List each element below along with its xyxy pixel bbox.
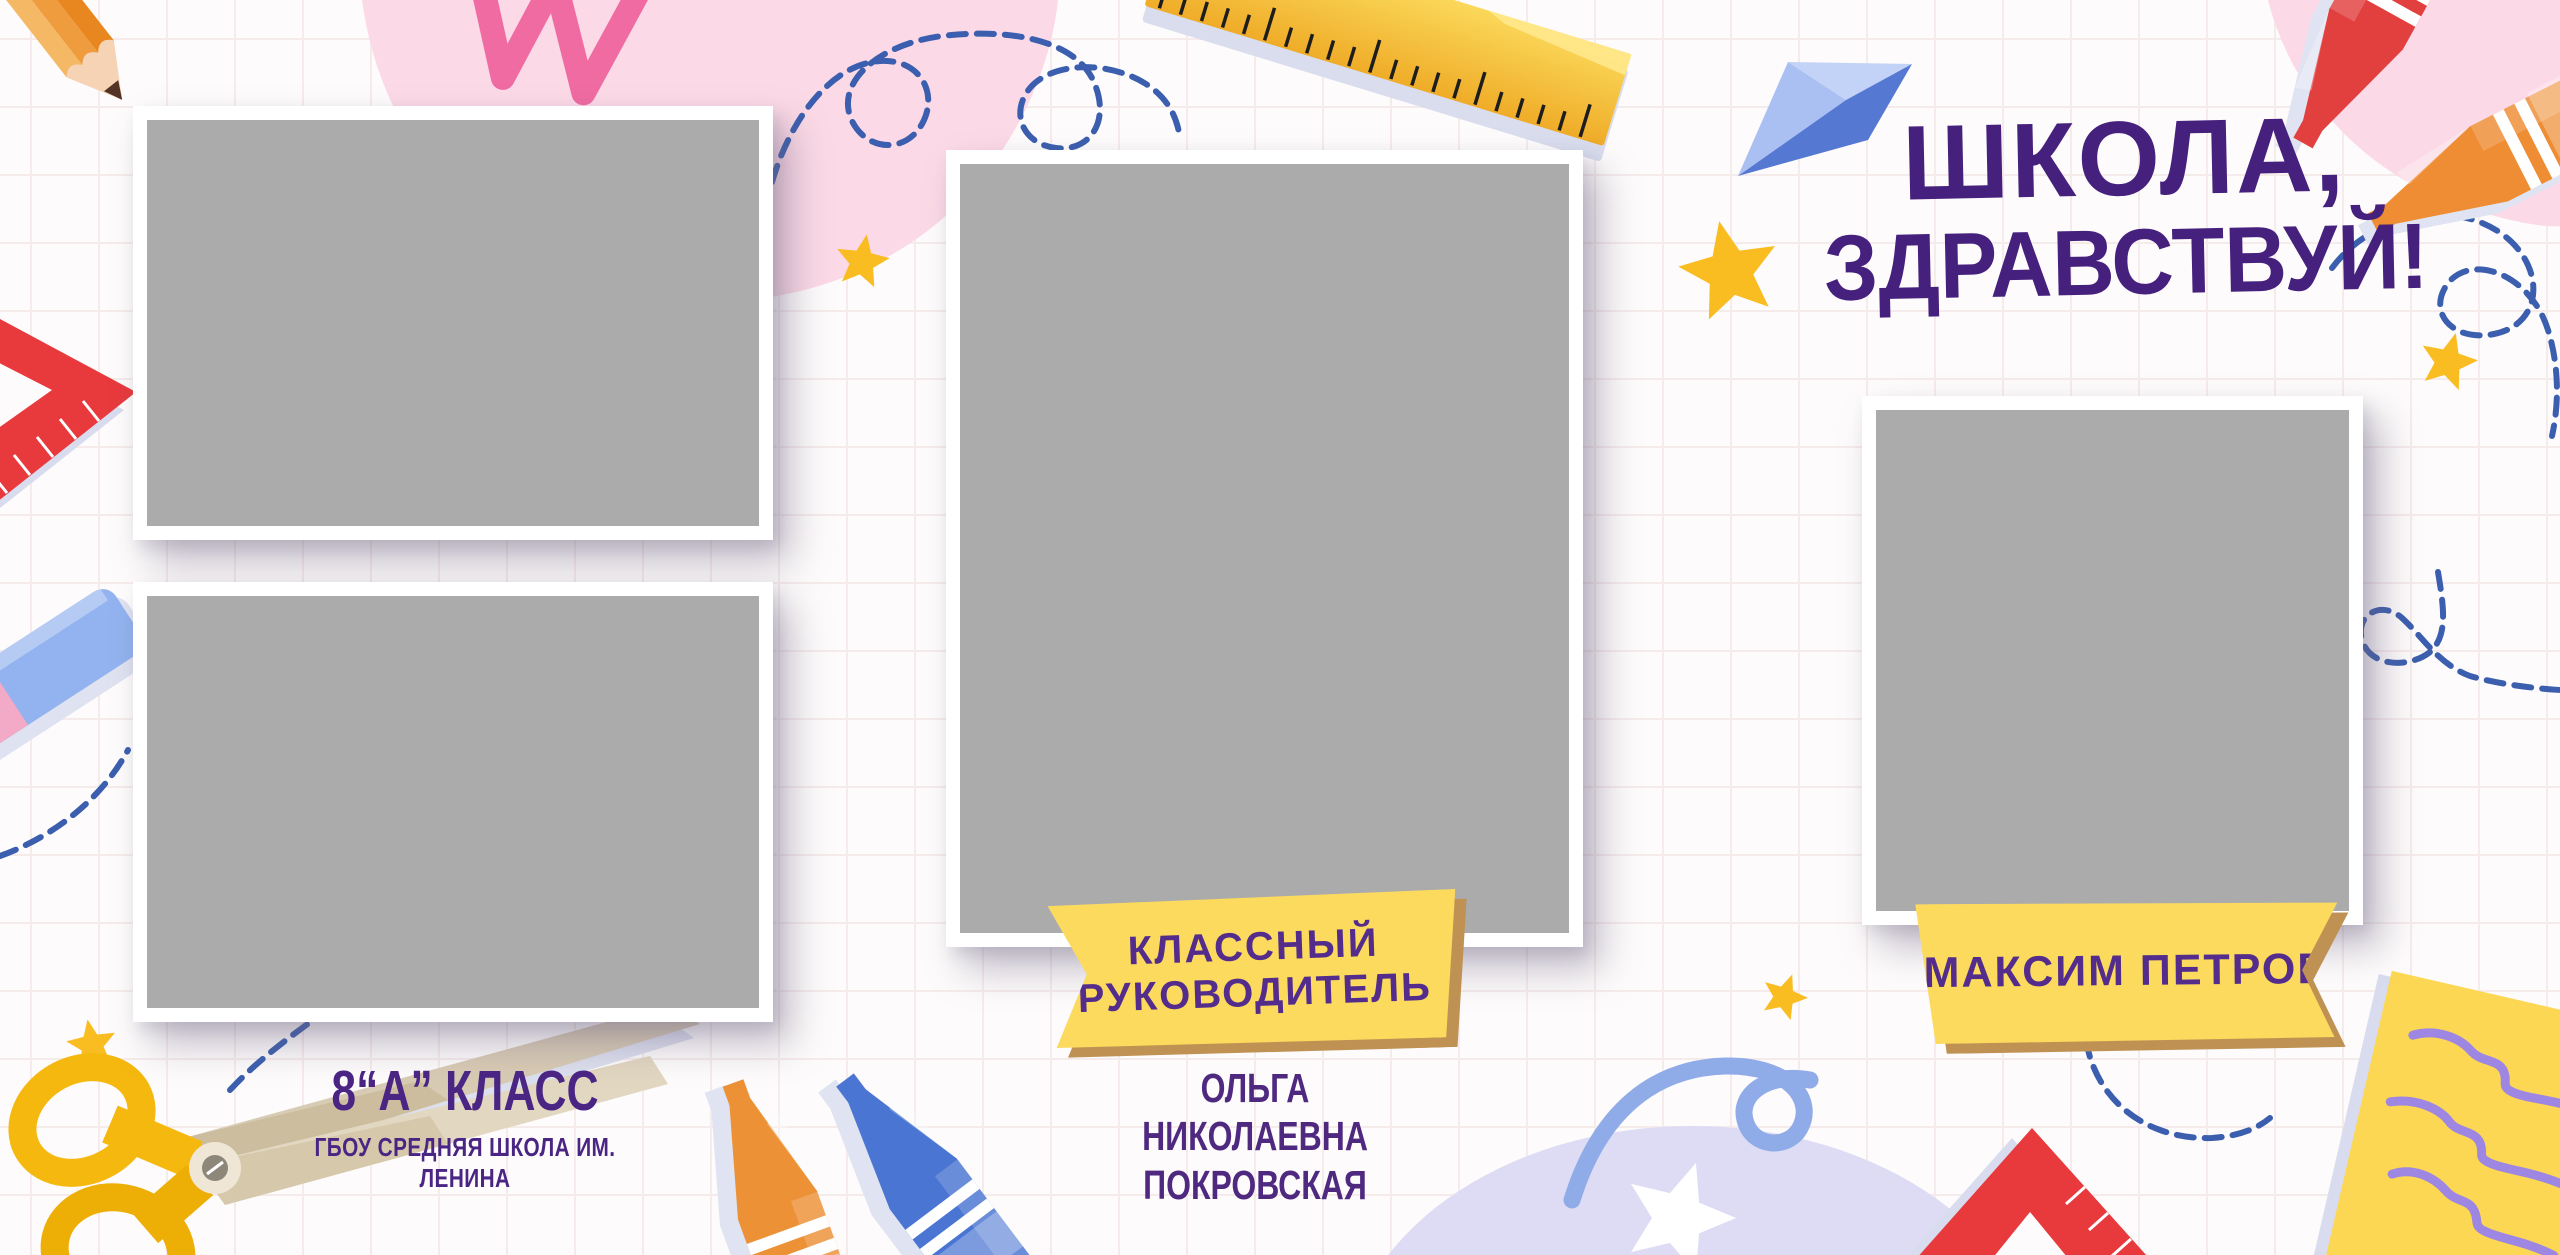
photo-placeholder-1[interactable] (133, 106, 773, 540)
class-info: 8“А” КЛАСС ГБОУ СРЕДНЯЯ ШКОЛА ИМ. ЛЕНИНА (270, 1058, 660, 1194)
album-spread: КЛАССНЫЙ РУКОВОДИТЕЛЬ МАКСИМ ПЕТРОВ ШКОЛ… (0, 0, 2560, 1255)
student-banner-label: МАКСИМ ПЕТРОВ (1923, 946, 2330, 998)
photo-placeholder-3[interactable] (946, 150, 1583, 947)
teacher-banner-label-line1: КЛАССНЫЙ (1127, 921, 1379, 974)
page-title-line1: ШКОЛА, (1768, 97, 2480, 222)
pencil-icon (0, 0, 146, 118)
student-banner: МАКСИМ ПЕТРОВ (1915, 900, 2338, 1044)
photo-area[interactable] (147, 120, 759, 526)
teacher-banner: КЛАССНЫЙ РУКОВОДИТЕЛЬ (1048, 889, 1461, 1051)
school-name: ГБОУ СРЕДНЯЯ ШКОЛА ИМ. ЛЕНИНА (309, 1132, 621, 1194)
photo-placeholder-4[interactable] (1862, 396, 2363, 925)
teacher-name: ОЛЬГА НИКОЛАЕВНА ПОКРОВСКАЯ (1055, 1064, 1455, 1209)
page-title-line2: ЗДРАВСТВУЙ! (1795, 207, 2457, 318)
banner-face: КЛАССНЫЙ РУКОВОДИТЕЛЬ (1048, 889, 1461, 1051)
class-label: 8“А” КЛАСС (313, 1058, 617, 1124)
yellow-ruler-icon (1140, 0, 1634, 162)
photo-area[interactable] (147, 596, 759, 1008)
teacher-name-line2: ПОКРОВСКАЯ (1099, 1161, 1411, 1209)
teacher-name-line1: ОЛЬГА НИКОЛАЕВНА (1099, 1064, 1411, 1161)
dashed-doodle-left (0, 750, 128, 856)
photo-area[interactable] (1876, 410, 2349, 911)
dashed-doodle-bottom-right (2086, 1040, 2270, 1138)
banner-face: МАКСИМ ПЕТРОВ (1915, 900, 2338, 1044)
triangle-ruler-left-icon (0, 225, 136, 573)
dashed-doodle-right-loop (2361, 572, 2560, 690)
page-title: ШКОЛА, ЗДРАВСТВУЙ! (1768, 97, 2482, 319)
photo-area[interactable] (960, 164, 1569, 933)
star-icon (1756, 967, 1814, 1023)
yellow-paper-note-icon (2300, 968, 2560, 1255)
photo-placeholder-2[interactable] (133, 582, 773, 1022)
